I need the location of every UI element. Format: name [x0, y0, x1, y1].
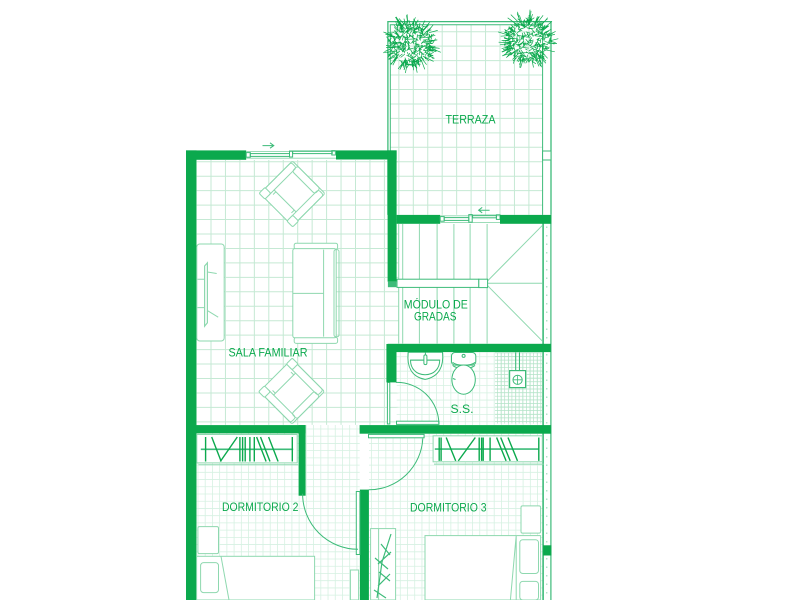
svg-text:SALA FAMILIAR: SALA FAMILIAR [229, 346, 308, 360]
svg-text:S.S.: S.S. [450, 402, 473, 416]
svg-text:TERRAZA: TERRAZA [446, 113, 497, 127]
svg-text:DORMITORIO 3: DORMITORIO 3 [410, 500, 487, 514]
svg-text:GRADAS: GRADAS [414, 310, 457, 324]
svg-text:DORMITORIO 2: DORMITORIO 2 [222, 500, 299, 514]
